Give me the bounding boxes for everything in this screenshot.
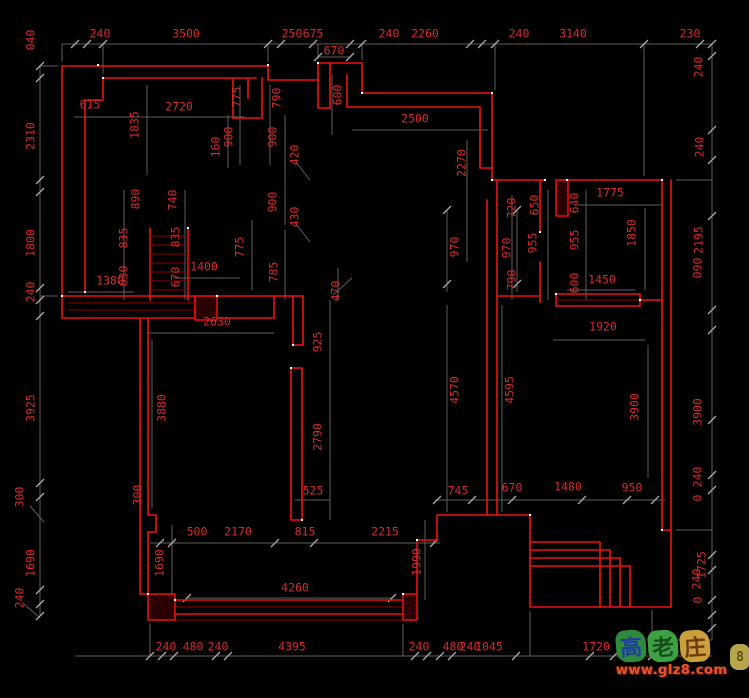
wall-pier <box>148 594 175 620</box>
watermark-url: www.glz8.com <box>616 663 748 678</box>
wall-pier <box>403 594 417 620</box>
dimension-lines <box>24 44 712 656</box>
sill-lines <box>68 236 640 620</box>
watermark-char-blob: 高 <box>615 629 647 663</box>
walls <box>62 63 671 614</box>
watermark-char-blob: 庄 <box>679 629 711 663</box>
watermark-char-blob: 老 <box>647 629 679 663</box>
watermark-char: 庄 <box>683 629 707 662</box>
watermark-characters: 高 老 庄 <box>616 630 748 662</box>
watermark-emoticon: 8 <box>730 644 749 670</box>
wall-pier <box>195 296 217 320</box>
watermark-char: 高 <box>619 629 643 662</box>
wall-pier <box>556 180 568 216</box>
watermark-char: 老 <box>651 629 675 662</box>
watermark: 高 老 庄 8 www.glz8.com <box>616 630 748 698</box>
dimension-ticks <box>36 40 716 660</box>
floorplan-drawing <box>0 0 749 698</box>
cad-canvas: 2403500250675670240226024031402300402310… <box>0 0 749 698</box>
snap-dots <box>61 62 663 601</box>
